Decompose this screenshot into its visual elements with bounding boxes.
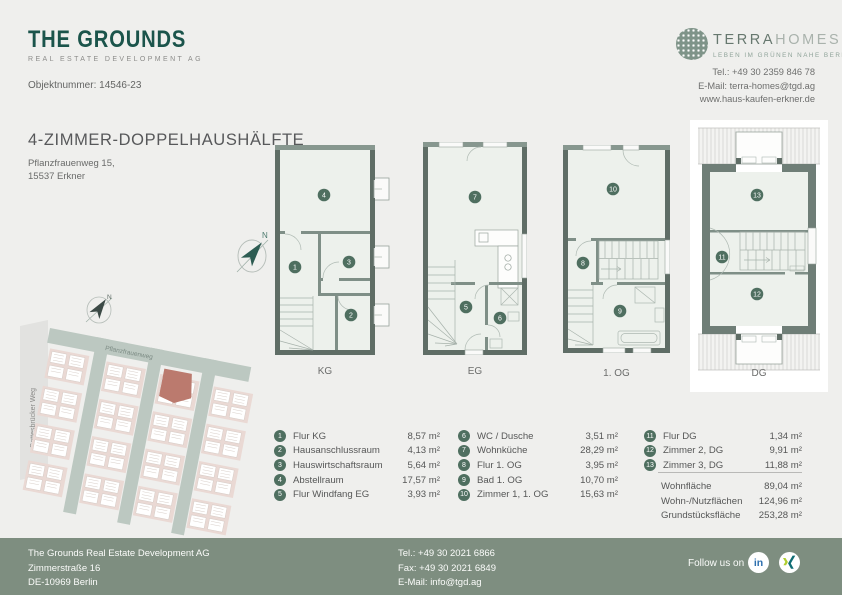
room-label: Flur DG — [663, 431, 769, 442]
total-label: Wohnfläche — [661, 481, 764, 492]
room-area: 5,64 m² — [407, 460, 440, 471]
room-row: 2Hausanschlussraum4,13 m² — [274, 444, 440, 459]
room-row: 6WC / Dusche3,51 m² — [458, 429, 618, 444]
floor-label-dg: DG — [690, 368, 828, 379]
address-line1: Pflanzfrauenweg 15, — [28, 157, 304, 170]
room-row: 11Flur DG1,34 m² — [644, 429, 802, 444]
total-value: 89,04 m² — [764, 481, 802, 492]
total-value: 253,28 m² — [759, 510, 802, 521]
footer-city: DE-10969 Berlin — [28, 576, 210, 591]
map-compass-north-label: N — [107, 294, 112, 301]
room-badge: 10 — [458, 489, 470, 501]
room-label: WC / Dusche — [477, 431, 585, 442]
room-row: 7Wohnküche28,29 m² — [458, 444, 618, 459]
total-label: Grundstücksfläche — [661, 510, 759, 521]
badge-1: 1 — [293, 265, 297, 272]
floor-label-kg: KG — [275, 366, 375, 377]
badge-7: 7 — [473, 195, 477, 202]
footer-bar: The Grounds Real Estate Development AG Z… — [0, 538, 842, 595]
terrahomes-website[interactable]: www.haus-kaufen-erkner.de — [698, 93, 815, 107]
badge-12: 12 — [753, 292, 761, 299]
room-label: Flur Windfang EG — [293, 489, 407, 500]
dg-window — [808, 228, 816, 264]
room-badge: 4 — [274, 474, 286, 486]
badge-9: 9 — [618, 309, 622, 316]
badge-11: 11 — [718, 255, 725, 262]
footer-phone: Tel.: +49 30 2021 6866 — [398, 547, 496, 562]
room-badge: 2 — [274, 445, 286, 457]
footer-contact-block: Tel.: +49 30 2021 6866 Fax: +49 30 2021 … — [398, 547, 496, 591]
object-number: Objektnummer: 14546-23 — [28, 80, 141, 91]
room-badge: 3 — [274, 459, 286, 471]
room-label: Zimmer 2, DG — [663, 445, 769, 456]
room-area: 9,91 m² — [769, 445, 802, 456]
badge-4: 4 — [322, 193, 326, 200]
room-label: Zimmer 3, DG — [663, 460, 765, 471]
terrahomes-logo: TERRAHOMES LEBEN IM GRÜNEN NAHE BERLIN — [713, 32, 842, 59]
linkedin-icon[interactable]: in — [748, 552, 769, 573]
compass-icon: N — [228, 224, 276, 288]
room-label: Hauswirtschaftsraum — [293, 460, 407, 471]
room-list-col3: 11Flur DG1,34 m² 12Zimmer 2, DG9,91 m² 1… — [644, 429, 802, 473]
map-town-grid: Pflanzfrauenweg — [16, 328, 258, 538]
badge-2: 2 — [349, 313, 353, 320]
floor-label-og: 1. OG — [563, 368, 670, 379]
room-area: 3,51 m² — [585, 431, 618, 442]
total-row: Wohnfläche89,04 m² — [644, 479, 802, 494]
room-row: 3Hauswirtschaftsraum5,64 m² — [274, 458, 440, 473]
compass-north-label: N — [262, 231, 268, 240]
footer-email[interactable]: E-Mail: info@tgd.ag — [398, 576, 496, 591]
address-line2: 15537 Erkner — [28, 170, 304, 183]
room-label: Flur KG — [293, 431, 407, 442]
room-label: Hausanschlussraum — [293, 445, 407, 456]
room-label: Wohnküche — [477, 445, 580, 456]
company-logo-tagline: REAL ESTATE DEVELOPMENT AG — [28, 56, 216, 63]
brochure-page: THE GROUNDS REAL ESTATE DEVELOPMENT AG O… — [0, 0, 842, 595]
room-area: 17,57 m² — [402, 475, 440, 486]
footer-company-block: The Grounds Real Estate Development AG Z… — [28, 547, 210, 591]
room-area: 3,93 m² — [407, 489, 440, 500]
room-area: 15,63 m² — [580, 489, 618, 500]
room-label: Flur 1. OG — [477, 460, 585, 471]
room-badge: 1 — [274, 430, 286, 442]
xing-glyph — [779, 552, 800, 573]
room-badge: 12 — [644, 445, 656, 457]
total-row: Wohn-/Nutzflächen124,96 m² — [644, 494, 802, 509]
room-badge: 9 — [458, 474, 470, 486]
room-row: 10Zimmer 1, 1. OG15,63 m² — [458, 487, 618, 502]
badge-13: 13 — [753, 193, 761, 200]
room-label: Bad 1. OG — [477, 475, 580, 486]
room-area: 1,34 m² — [769, 431, 802, 442]
room-row: 8Flur 1. OG3,95 m² — [458, 458, 618, 473]
terrahomes-name: TERRAHOMES — [713, 32, 842, 48]
company-logo-text: THE GROUNDS — [28, 26, 186, 54]
floorplan-eg: 7 5 6 — [423, 142, 527, 355]
follow-us-label: Follow us on — [688, 558, 744, 569]
listing-header: 4-ZIMMER-DOPPELHAUSHÄLFTE Pflanzfrauenwe… — [28, 131, 304, 183]
badge-10: 10 — [609, 187, 617, 194]
footer-street: Zimmerstraße 16 — [28, 562, 210, 577]
room-area: 4,13 m² — [407, 445, 440, 456]
floorplan-kg: 4 1 3 2 — [275, 145, 393, 357]
floorplan-dg: 13 11 12 — [690, 120, 828, 392]
room-badge: 8 — [458, 459, 470, 471]
terrahomes-logo-icon — [676, 28, 708, 60]
room-label: Abstellraum — [293, 475, 402, 486]
badge-5: 5 — [464, 305, 468, 312]
totals-divider — [658, 472, 802, 473]
linkedin-glyph: in — [754, 557, 763, 569]
room-row: 9Bad 1. OG10,70 m² — [458, 473, 618, 488]
floorplan-og: 10 8 9 — [563, 145, 670, 353]
terrahomes-name-secondary: HOMES — [775, 32, 841, 48]
terrahomes-contact: Tel.: +49 30 2359 846 78 E-Mail: terra-h… — [698, 66, 815, 107]
room-row: 12Zimmer 2, DG9,91 m² — [644, 444, 802, 459]
footer-fax: Fax: +49 30 2021 6849 — [398, 562, 496, 577]
room-list-col1: 1Flur KG8,57 m² 2Hausanschlussraum4,13 m… — [274, 429, 440, 502]
room-row: 13Zimmer 3, DG11,88 m² — [644, 458, 802, 473]
footer-company: The Grounds Real Estate Development AG — [28, 547, 210, 562]
site-map: Gottesbrücker Weg Pflanzfrauenweg N — [8, 290, 260, 538]
floor-label-eg: EG — [423, 366, 527, 377]
room-list-col2: 6WC / Dusche3,51 m² 7Wohnküche28,29 m² 8… — [458, 429, 618, 502]
room-area: 10,70 m² — [580, 475, 618, 486]
total-row: Grundstücksfläche253,28 m² — [644, 509, 802, 524]
map-compass-icon: N — [86, 294, 112, 323]
badge-3: 3 — [347, 260, 351, 267]
room-badge: 7 — [458, 445, 470, 457]
badge-6: 6 — [498, 316, 502, 323]
room-area: 3,95 m² — [585, 460, 618, 471]
room-area: 8,57 m² — [407, 431, 440, 442]
room-badge: 5 — [274, 489, 286, 501]
company-logo: THE GROUNDS REAL ESTATE DEVELOPMENT AG — [28, 26, 216, 63]
badge-8: 8 — [581, 261, 585, 268]
total-label: Wohn-/Nutzflächen — [661, 496, 759, 507]
total-value: 124,96 m² — [759, 496, 802, 507]
room-row: 5Flur Windfang EG3,93 m² — [274, 487, 440, 502]
terrahomes-claim: LEBEN IM GRÜNEN NAHE BERLIN — [713, 52, 842, 59]
room-label: Zimmer 1, 1. OG — [477, 489, 580, 500]
room-area: 28,29 m² — [580, 445, 618, 456]
terrahomes-email[interactable]: E-Mail: terra-homes@tgd.ag — [698, 80, 815, 94]
room-row: 1Flur KG8,57 m² — [274, 429, 440, 444]
room-badge: 6 — [458, 430, 470, 442]
terrahomes-name-primary: TERRA — [713, 32, 775, 48]
listing-address: Pflanzfrauenweg 15, 15537 Erkner — [28, 157, 304, 183]
xing-icon[interactable] — [779, 552, 800, 573]
listing-title: 4-ZIMMER-DOPPELHAUSHÄLFTE — [28, 131, 304, 150]
room-badge: 11 — [644, 430, 656, 442]
room-badge: 13 — [644, 459, 656, 471]
area-totals: Wohnfläche89,04 m² Wohn-/Nutzflächen124,… — [644, 472, 802, 523]
room-row: 4Abstellraum17,57 m² — [274, 473, 440, 488]
room-area: 11,88 m² — [765, 460, 802, 471]
terrahomes-phone: Tel.: +49 30 2359 846 78 — [698, 66, 815, 80]
